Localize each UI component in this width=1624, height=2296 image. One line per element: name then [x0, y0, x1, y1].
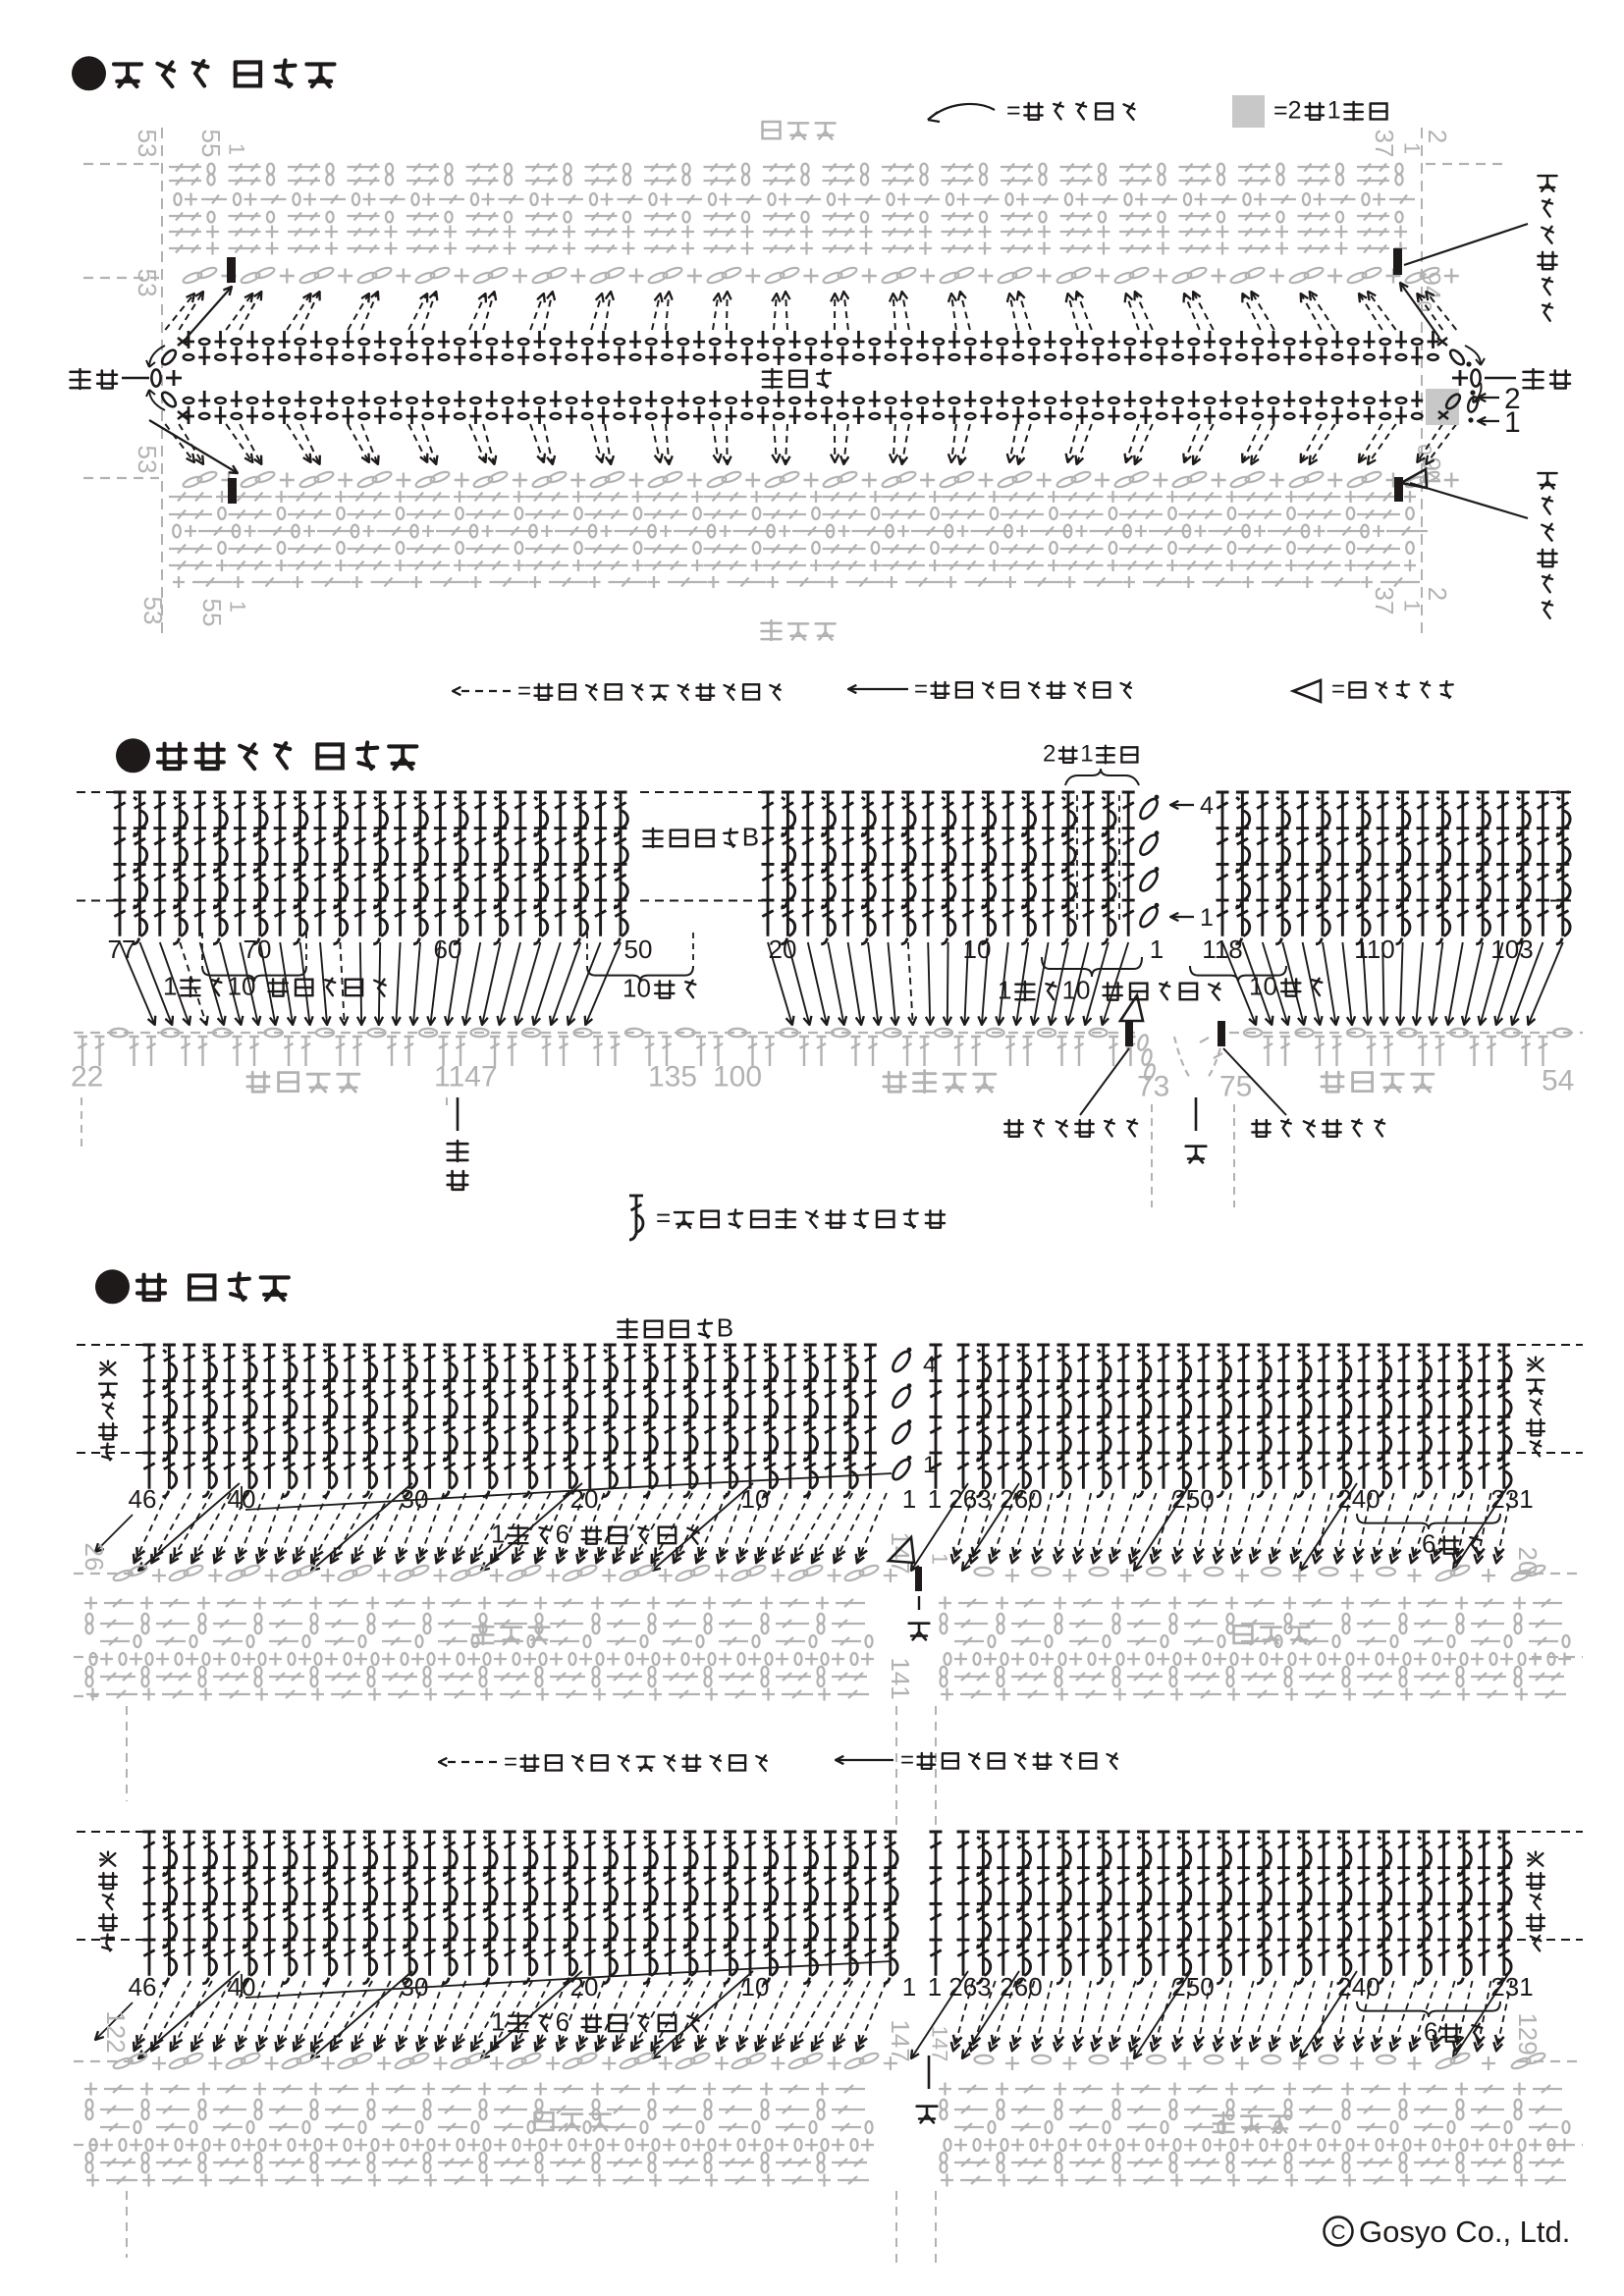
- svg-text:55: 55: [196, 130, 226, 158]
- svg-text:53: 53: [133, 130, 162, 158]
- svg-text:10: 10: [623, 973, 651, 1002]
- svg-text:1: 1: [1150, 934, 1164, 964]
- svg-text:10: 10: [741, 1972, 770, 2002]
- svg-text:26: 26: [80, 1543, 109, 1572]
- svg-text:46: 46: [129, 1484, 157, 1514]
- svg-text:122: 122: [101, 2010, 131, 2053]
- svg-text:1147: 1147: [434, 1061, 498, 1094]
- svg-text:2: 2: [1423, 130, 1452, 143]
- svg-text:75: 75: [1219, 1071, 1252, 1103]
- svg-text:231: 231: [1490, 1972, 1533, 2002]
- svg-text:1: 1: [491, 2006, 505, 2036]
- svg-text:70: 70: [244, 934, 272, 964]
- svg-text:1: 1: [902, 1972, 916, 2002]
- svg-text:37: 37: [1370, 130, 1399, 158]
- svg-text:=: =: [1331, 676, 1345, 703]
- svg-text:1: 1: [923, 1452, 936, 1478]
- svg-text:6: 6: [556, 1519, 569, 1548]
- svg-text:1: 1: [902, 1484, 916, 1514]
- svg-text:4: 4: [923, 1352, 936, 1378]
- svg-text:=: =: [914, 676, 928, 703]
- svg-text:=2: =2: [1273, 97, 1302, 125]
- svg-text:B: B: [742, 822, 759, 851]
- svg-text:22: 22: [71, 1061, 103, 1094]
- svg-text:50: 50: [624, 934, 653, 964]
- svg-text:1: 1: [928, 1484, 942, 1514]
- svg-text:=: =: [504, 1749, 517, 1776]
- svg-text:=: =: [1006, 97, 1021, 125]
- svg-text:1: 1: [1400, 600, 1425, 612]
- svg-text:1: 1: [226, 601, 250, 613]
- svg-text:54: 54: [1542, 1065, 1574, 1097]
- svg-text:53: 53: [138, 597, 168, 625]
- svg-text:37: 37: [1370, 587, 1399, 615]
- svg-text:Gosyo Co., Ltd.: Gosyo Co., Ltd.: [1359, 2215, 1570, 2249]
- svg-text:53: 53: [133, 269, 162, 297]
- svg-text:260: 260: [1000, 1484, 1042, 1514]
- svg-text:110: 110: [1354, 934, 1394, 964]
- svg-text:135: 135: [648, 1061, 697, 1094]
- svg-text:C: C: [1330, 2221, 1345, 2244]
- svg-text:2: 2: [1423, 587, 1452, 601]
- svg-text:55: 55: [197, 599, 227, 627]
- svg-text:53: 53: [133, 446, 162, 474]
- svg-text:1: 1: [225, 143, 249, 155]
- svg-text:20: 20: [1513, 1547, 1543, 1575]
- svg-text:1: 1: [1327, 97, 1341, 125]
- svg-text:=: =: [656, 1202, 671, 1232]
- svg-text:129: 129: [1513, 2012, 1543, 2055]
- svg-text:263: 263: [948, 1484, 991, 1514]
- svg-text:0: 0: [1413, 444, 1435, 454]
- svg-text:6: 6: [1422, 1528, 1435, 1558]
- svg-text:=: =: [517, 678, 531, 705]
- svg-text:118: 118: [1202, 934, 1242, 964]
- svg-text:1: 1: [491, 1519, 505, 1548]
- svg-text:6: 6: [556, 2006, 569, 2036]
- svg-text:231: 231: [1490, 1484, 1533, 1514]
- svg-text:1: 1: [1400, 142, 1425, 154]
- svg-text:46: 46: [129, 1972, 157, 2002]
- svg-text:1: 1: [1504, 406, 1521, 439]
- svg-text:10: 10: [741, 1484, 770, 1514]
- svg-text:1: 1: [928, 1553, 952, 1565]
- svg-text:141: 141: [886, 1657, 915, 1699]
- svg-text:1: 1: [1200, 904, 1214, 932]
- svg-text:263: 263: [948, 1972, 991, 2002]
- svg-text:4: 4: [1200, 792, 1214, 820]
- svg-text:240: 240: [1337, 1972, 1380, 2002]
- svg-text:73: 73: [1137, 1071, 1169, 1103]
- svg-text:147: 147: [886, 2019, 915, 2061]
- svg-text:1: 1: [928, 1972, 942, 2002]
- svg-text:260: 260: [1000, 1972, 1042, 2002]
- svg-text:240: 240: [1337, 1484, 1380, 1514]
- svg-text:147: 147: [928, 2026, 952, 2062]
- svg-text:=: =: [900, 1747, 914, 1774]
- svg-text:2: 2: [1043, 741, 1056, 768]
- svg-text:100: 100: [713, 1061, 762, 1094]
- svg-text:B: B: [717, 1312, 733, 1342]
- svg-text:1: 1: [1080, 741, 1093, 768]
